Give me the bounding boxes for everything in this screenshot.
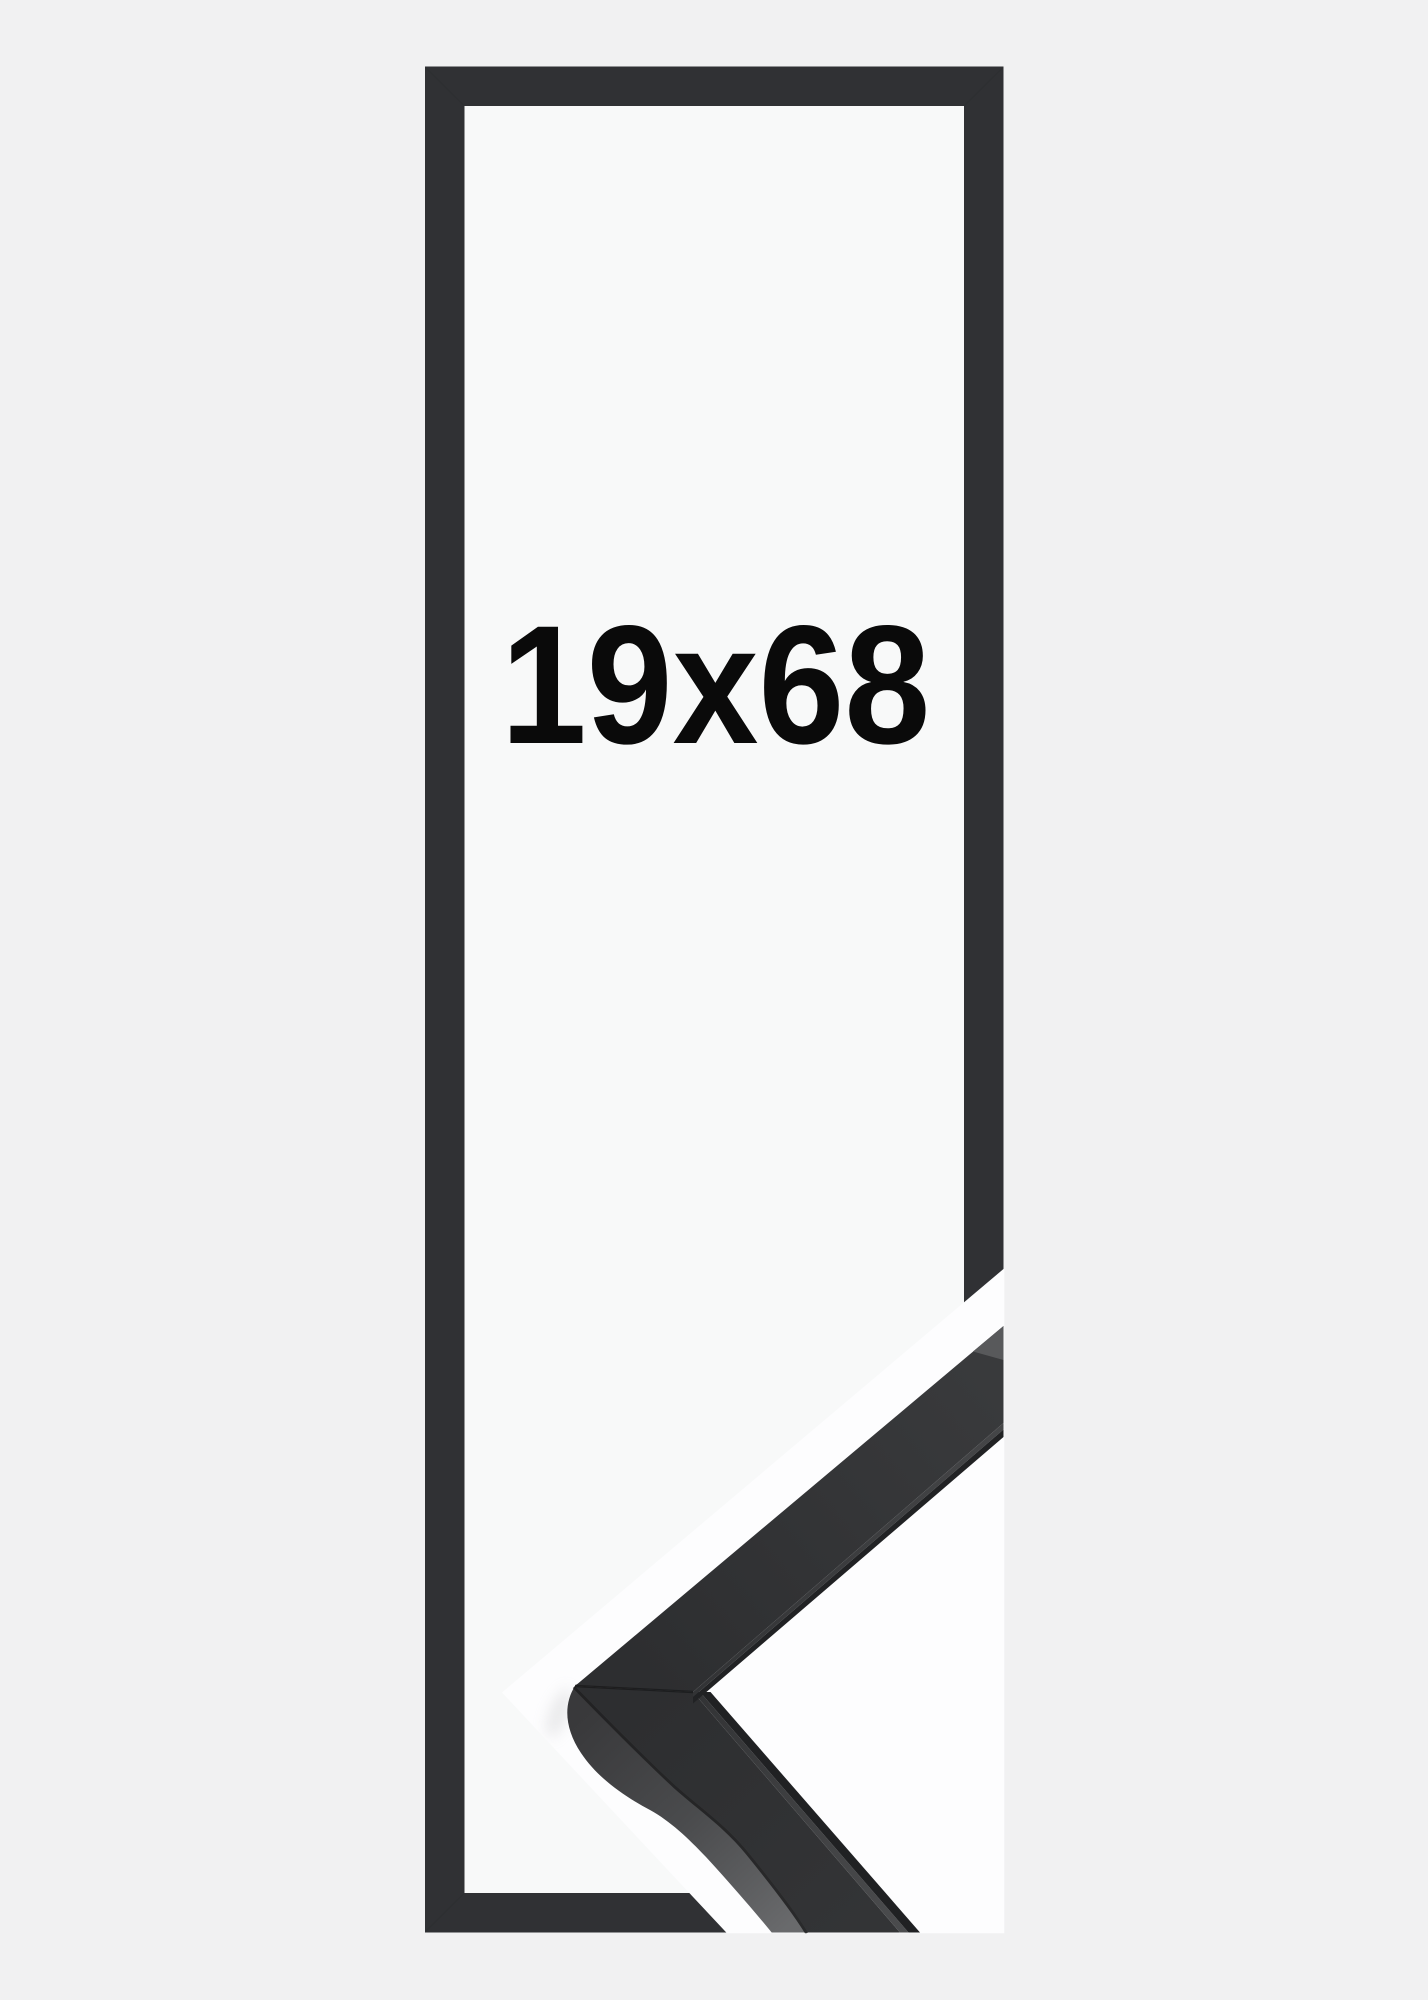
svg-text:19x68: 19x68 <box>501 591 930 780</box>
